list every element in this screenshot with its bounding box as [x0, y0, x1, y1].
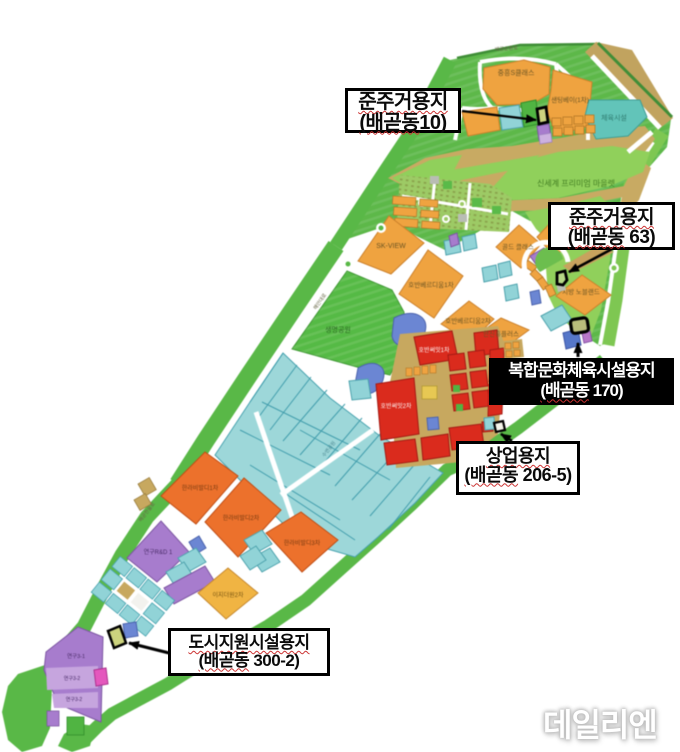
- svg-text:호반베르디움2차: 호반베르디움2차: [445, 316, 490, 325]
- svg-text:연구3-2: 연구3-2: [66, 696, 83, 703]
- svg-text:연구3-2: 연구3-2: [64, 675, 81, 682]
- svg-text:한라비발디1차: 한라비발디1차: [182, 484, 219, 492]
- svg-text:중흥S클래스: 중흥S클래스: [498, 68, 535, 77]
- svg-text:체육시설: 체육시설: [601, 114, 627, 122]
- svg-text:연구3-1: 연구3-1: [67, 652, 85, 660]
- svg-text:호반써밋2차: 호반써밋2차: [381, 402, 412, 410]
- svg-text:이지더원2차: 이지더원2차: [213, 591, 244, 599]
- svg-text:한라비발디3차: 한라비발디3차: [284, 539, 321, 547]
- svg-text:골드 클래스: 골드 클래스: [502, 242, 534, 251]
- svg-text:호반베르디움1차: 호반베르디움1차: [408, 280, 453, 289]
- svg-text:연구R&D 1: 연구R&D 1: [144, 548, 173, 556]
- svg-text:샌팅베이(1차): 샌팅베이(1차): [551, 95, 589, 104]
- svg-text:SK-VIEW: SK-VIEW: [376, 243, 406, 250]
- svg-text:한신휴플러스: 한신휴플러스: [483, 329, 519, 338]
- svg-text:한라비발디2차: 한라비발디2차: [223, 514, 260, 522]
- svg-text:시방 노블랜드: 시방 노블랜드: [562, 287, 600, 296]
- svg-text:생명공원: 생명공원: [325, 325, 351, 334]
- svg-text:신세계 프리미엄 마을렛: 신세계 프리미엄 마을렛: [537, 178, 615, 188]
- svg-text:호반써밋1차: 호반써밋1차: [419, 346, 450, 354]
